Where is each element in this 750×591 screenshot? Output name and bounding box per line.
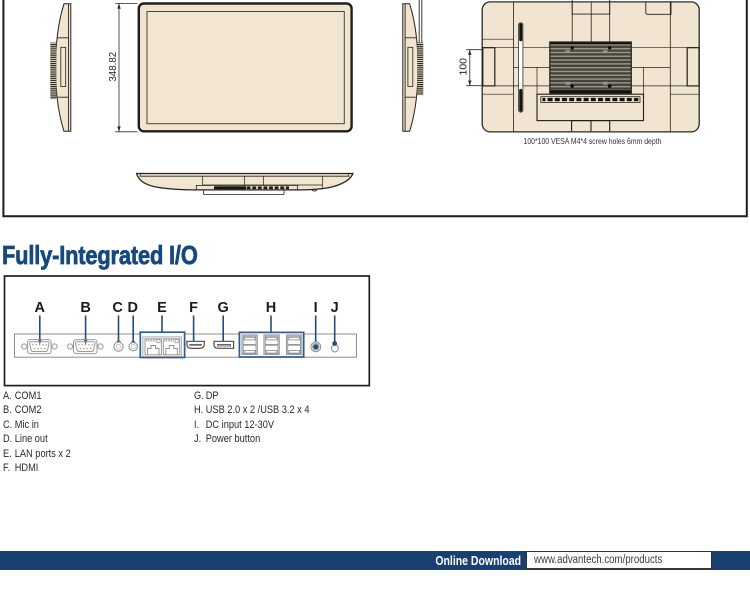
svg-text:E: E — [157, 300, 167, 316]
svg-text:A: A — [35, 300, 46, 316]
svg-text:B: B — [80, 300, 90, 316]
svg-text:I: I — [314, 300, 318, 316]
svg-text:348.82: 348.82 — [108, 52, 119, 82]
svg-text:C: C — [112, 300, 123, 316]
svg-text:F: F — [189, 300, 198, 316]
svg-text:D: D — [128, 300, 138, 316]
svg-text:100*100 VESA M4*4 screw holes: 100*100 VESA M4*4 screw holes 6mm depth — [524, 137, 662, 147]
svg-text:H: H — [266, 300, 276, 316]
svg-text:J: J — [331, 300, 339, 316]
svg-text:G: G — [218, 300, 229, 316]
svg-text:100: 100 — [458, 58, 470, 76]
